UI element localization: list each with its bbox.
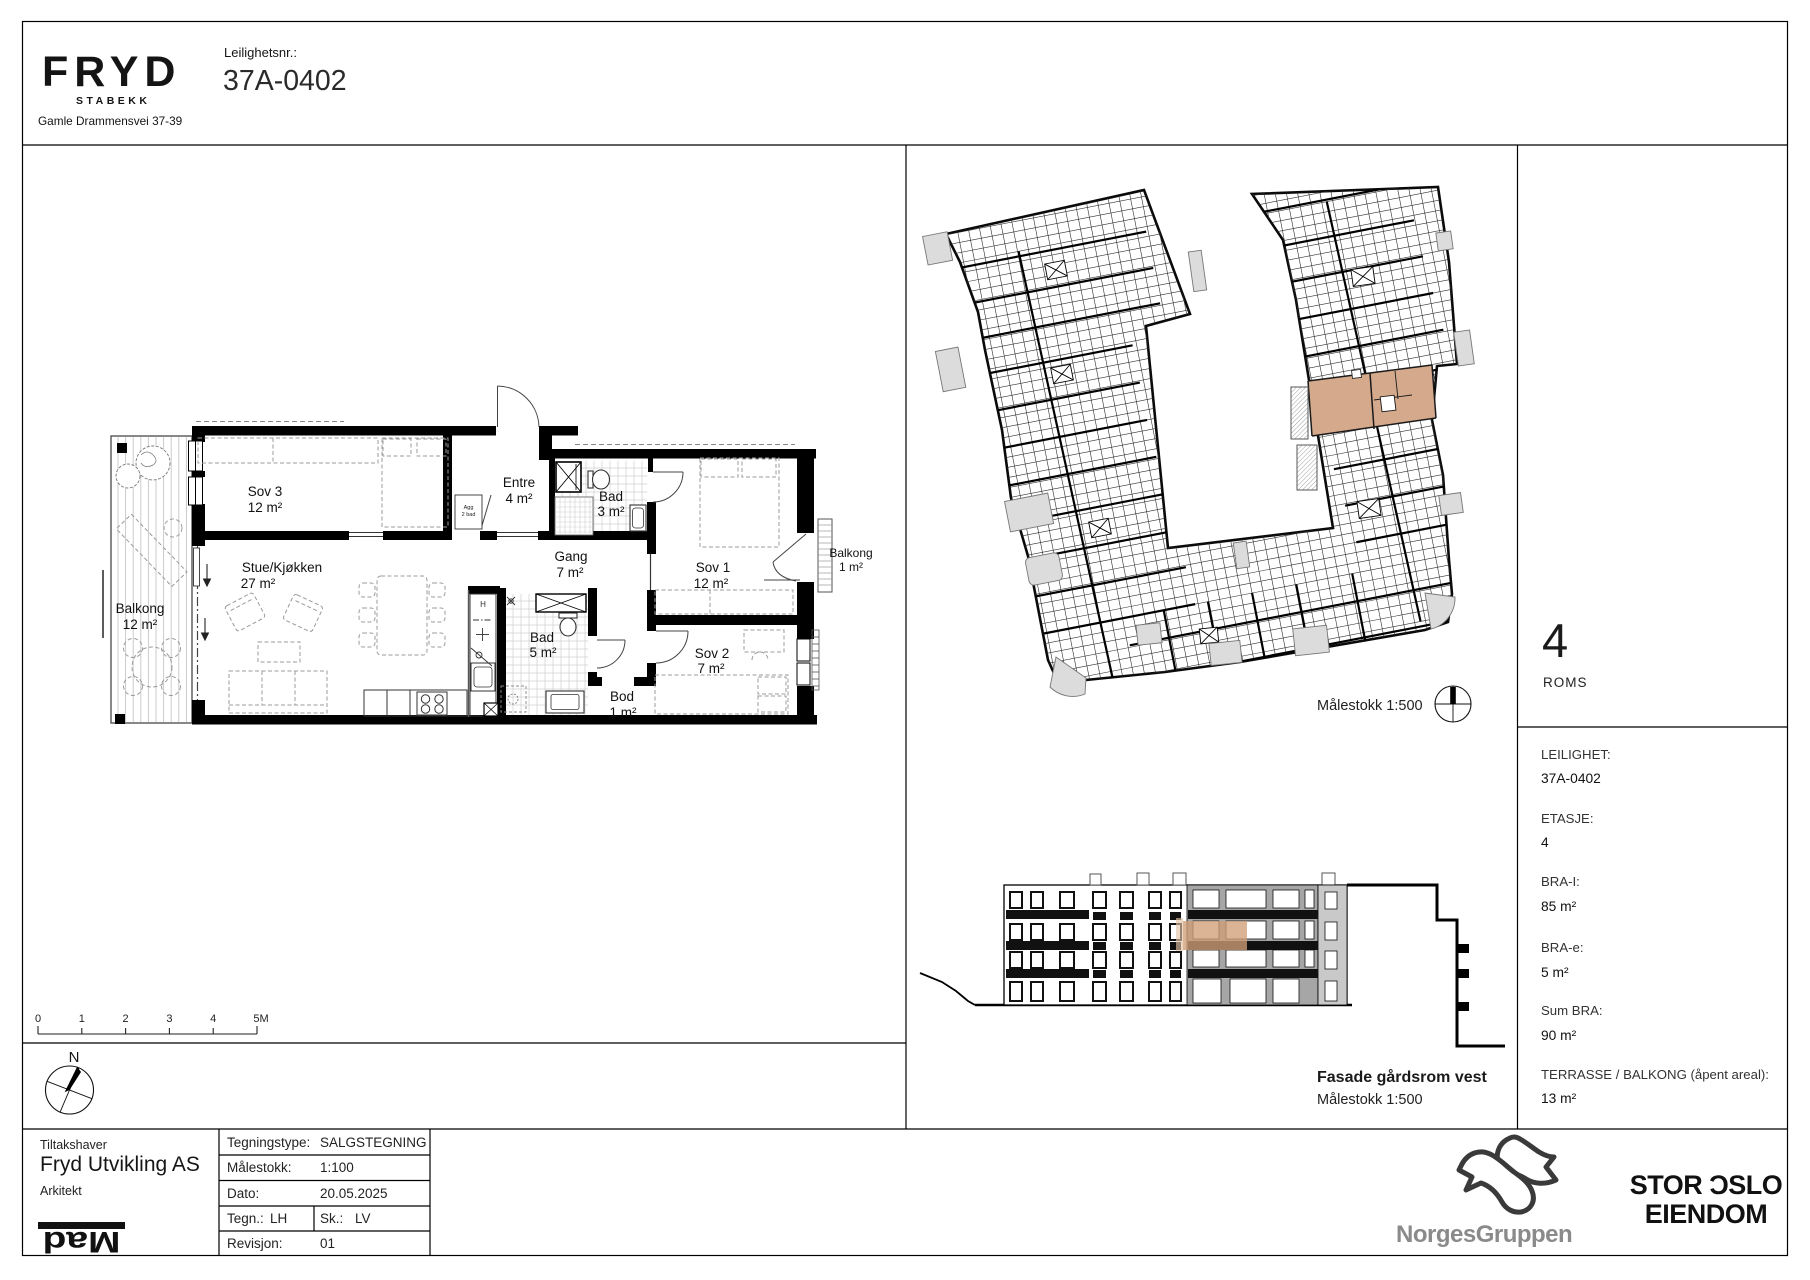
svg-text:Bod: Bod	[610, 689, 634, 704]
svg-text:7 m²: 7 m²	[557, 565, 585, 580]
svg-text:3 m²: 3 m²	[598, 504, 626, 519]
svg-text:Målestokk 1:500: Målestokk 1:500	[1317, 698, 1423, 714]
svg-text:Målestokk 1:500: Målestokk 1:500	[1317, 1092, 1423, 1108]
svg-text:1 m²: 1 m²	[610, 705, 638, 720]
svg-text:5 m²: 5 m²	[530, 645, 558, 660]
svg-text:Sov 1: Sov 1	[696, 560, 731, 575]
svg-text:H: H	[480, 600, 486, 609]
svg-text:2 bad: 2 bad	[462, 512, 476, 518]
svg-text:12 m²: 12 m²	[248, 500, 283, 515]
svg-text:Bad: Bad	[530, 630, 554, 645]
svg-text:Bad: Bad	[599, 489, 623, 504]
svg-text:Entre: Entre	[503, 475, 535, 490]
svg-text:Stue/Kjøkken: Stue/Kjøkken	[242, 560, 322, 575]
svg-text:Fasade gårdsrom vest: Fasade gårdsrom vest	[1317, 1068, 1488, 1086]
svg-text:1: 1	[79, 1013, 85, 1025]
svg-text:1 m²: 1 m²	[839, 560, 863, 574]
svg-text:27 m²: 27 m²	[241, 576, 276, 591]
svg-text:Balkong: Balkong	[829, 546, 872, 560]
svg-text:7 m²: 7 m²	[698, 661, 726, 676]
svg-text:4: 4	[210, 1013, 216, 1025]
svg-text:2: 2	[123, 1013, 129, 1025]
svg-text:Balkong: Balkong	[116, 601, 165, 616]
svg-text:4 m²: 4 m²	[506, 491, 534, 506]
svg-text:N: N	[69, 1049, 80, 1066]
svg-text:12 m²: 12 m²	[123, 617, 158, 632]
svg-text:3: 3	[166, 1013, 172, 1025]
svg-text:Sov 2: Sov 2	[695, 646, 730, 661]
svg-text:Gang: Gang	[554, 549, 587, 564]
svg-text:0: 0	[35, 1013, 41, 1025]
svg-text:Agg: Agg	[464, 505, 474, 511]
svg-text:5M: 5M	[253, 1013, 268, 1025]
svg-text:12 m²: 12 m²	[694, 576, 729, 591]
svg-text:Sov 3: Sov 3	[248, 484, 283, 499]
